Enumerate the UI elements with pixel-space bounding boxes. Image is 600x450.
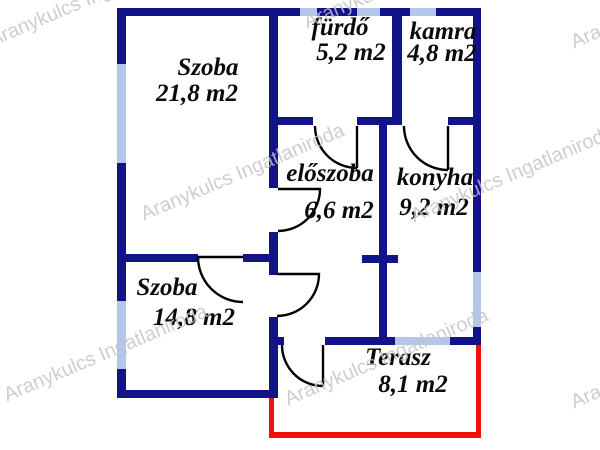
room-label-kitchen-name: konyha [365, 165, 505, 191]
room-label-kitchen-area: 9,2 m2 [364, 195, 504, 221]
room-label-terrace-name: Terasz [328, 345, 468, 371]
door-swing-layer [0, 0, 600, 450]
door-hall-bedroom [277, 274, 319, 316]
door-terrace [282, 345, 323, 386]
room-label-pantry-area: 4,8 m2 [372, 41, 512, 67]
room-label-bedroom-area: 14,8 m2 [124, 305, 264, 331]
room-label-bedroom-name: Szoba [97, 275, 237, 301]
floor-plan: Szoba 21,8 m2 fürdő 5,2 m2 kamra 4,8 m2 … [0, 0, 600, 450]
room-label-terrace-area: 8,1 m2 [343, 372, 483, 398]
room-label-living-name: Szoba [138, 55, 278, 81]
room-label-living-area: 21,8 m2 [127, 81, 267, 107]
